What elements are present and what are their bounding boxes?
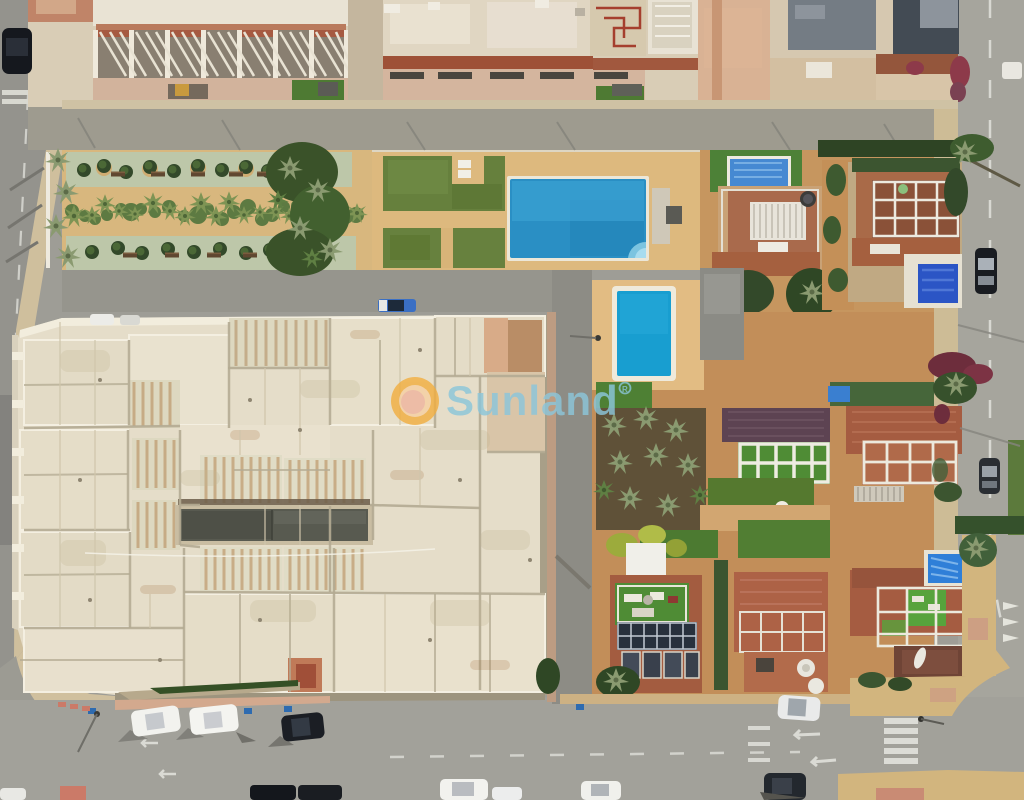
svg-text:R: R bbox=[622, 385, 628, 394]
svg-text:Sunland: Sunland bbox=[446, 377, 619, 424]
